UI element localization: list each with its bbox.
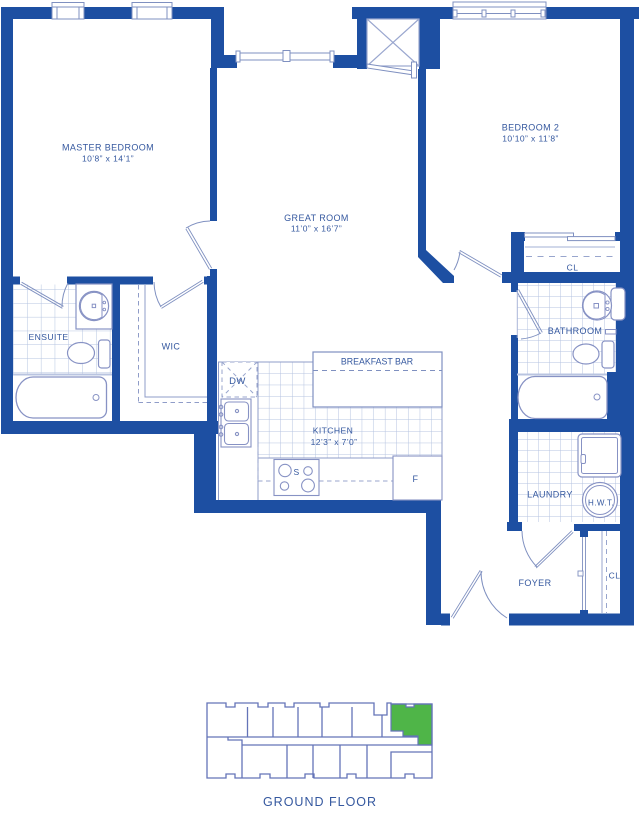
svg-text:H.W.T.: H.W.T. — [588, 499, 614, 508]
svg-text:CL: CL — [609, 571, 621, 581]
svg-text:LAUNDRY: LAUNDRY — [527, 490, 573, 500]
svg-text:10’8” x 14’1”: 10’8” x 14’1” — [82, 154, 134, 164]
svg-text:CL: CL — [567, 263, 579, 273]
svg-text:DW: DW — [229, 376, 246, 387]
svg-text:WIC: WIC — [162, 342, 181, 352]
svg-text:ENSUITE: ENSUITE — [28, 332, 68, 342]
svg-text:BREAKFAST BAR: BREAKFAST BAR — [341, 357, 413, 367]
svg-text:GROUND FLOOR: GROUND FLOOR — [263, 795, 377, 809]
svg-text:11’0” x 16’7”: 11’0” x 16’7” — [291, 224, 342, 234]
svg-text:MASTER BEDROOM: MASTER BEDROOM — [62, 143, 154, 153]
svg-text:F: F — [413, 474, 419, 484]
svg-text:BEDROOM 2: BEDROOM 2 — [502, 123, 560, 133]
svg-text:KITCHEN: KITCHEN — [313, 426, 354, 436]
svg-text:12’3” x 7’0”: 12’3” x 7’0” — [311, 437, 358, 447]
svg-text:FOYER: FOYER — [518, 578, 551, 588]
svg-text:BATHROOM: BATHROOM — [548, 326, 603, 336]
svg-text:GREAT ROOM: GREAT ROOM — [284, 213, 349, 223]
svg-text:10’10” x 11’8”: 10’10” x 11’8” — [502, 134, 558, 144]
svg-text:S: S — [293, 467, 299, 477]
